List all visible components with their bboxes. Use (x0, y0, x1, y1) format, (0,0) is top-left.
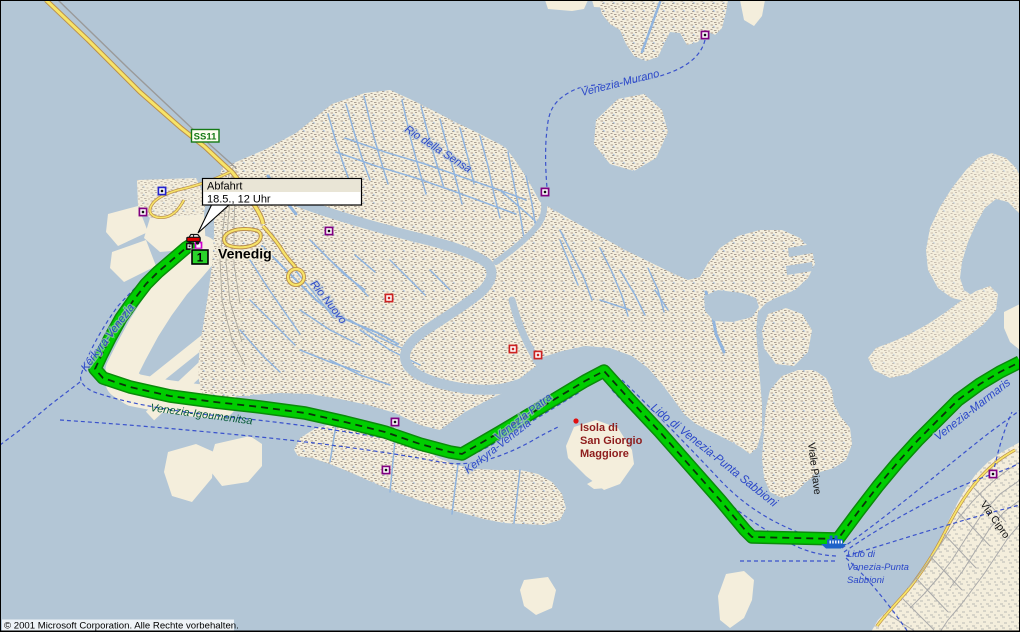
svg-text:Venezia-Punta: Venezia-Punta (847, 562, 909, 573)
svg-text:Venedig: Venedig (218, 246, 272, 262)
svg-text:San Giorgio: San Giorgio (580, 435, 643, 447)
svg-text:Lido di: Lido di (847, 549, 876, 560)
svg-text:1: 1 (197, 253, 204, 265)
svg-text:Sabbioni: Sabbioni (847, 575, 885, 586)
svg-text:Isola di: Isola di (580, 422, 618, 434)
svg-text:SS11: SS11 (194, 132, 217, 143)
svg-text:Maggiore: Maggiore (580, 448, 629, 460)
svg-text:18.5., 12 Uhr: 18.5., 12 Uhr (207, 194, 271, 206)
svg-text:Abfahrt: Abfahrt (207, 181, 242, 193)
svg-text:© 2001 Microsoft Corporation.: © 2001 Microsoft Corporation. Alle Recht… (4, 621, 239, 632)
